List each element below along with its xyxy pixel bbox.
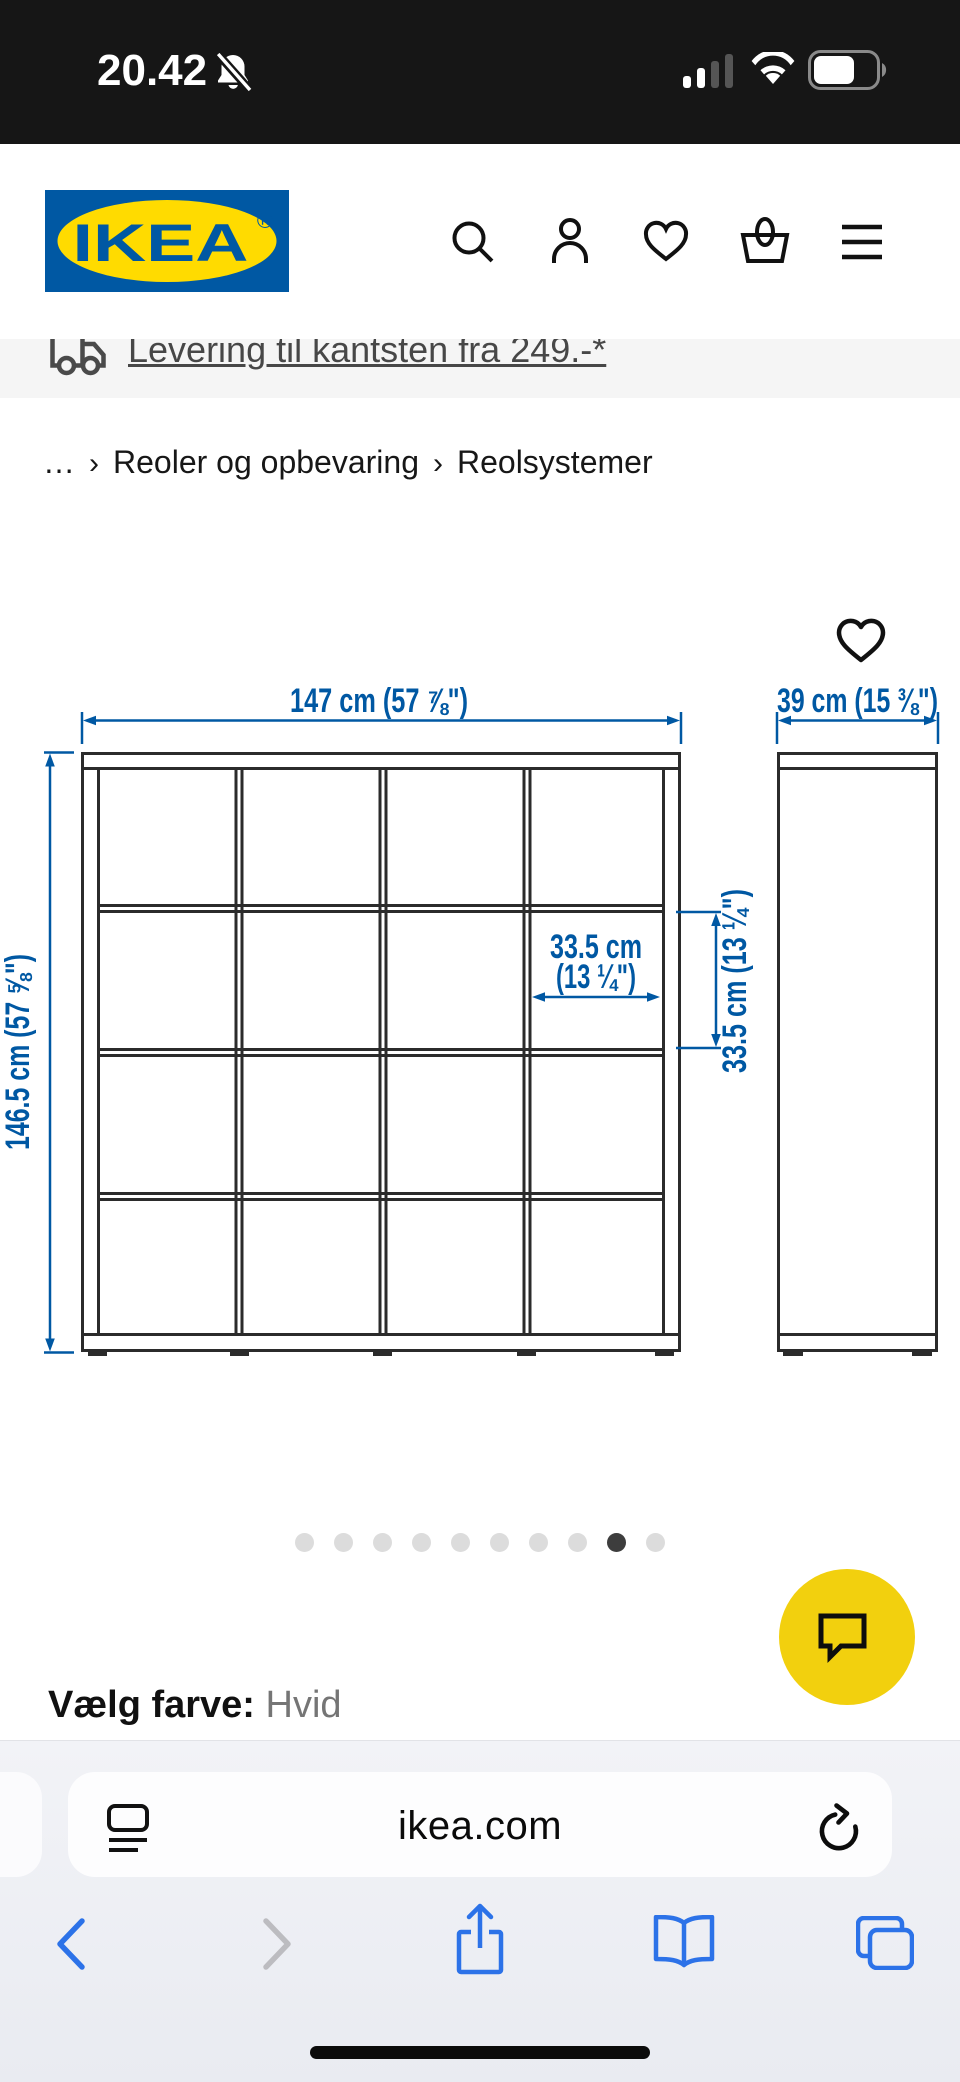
svg-text:(13 ¼"): (13 ¼") [556,958,636,996]
svg-text:39 cm (15 ⅜"): 39 cm (15 ⅜") [777,682,938,720]
svg-text:IKEA: IKEA [73,214,249,273]
svg-text:147 cm (57 ⅞"): 147 cm (57 ⅞") [290,682,468,720]
svg-text:33.5 cm (13 ¼"): 33.5 cm (13 ¼") [716,889,754,1073]
svg-text:146.5 cm (57 ⅝"): 146.5 cm (57 ⅝") [0,954,37,1150]
svg-text:®: ® [257,208,273,233]
